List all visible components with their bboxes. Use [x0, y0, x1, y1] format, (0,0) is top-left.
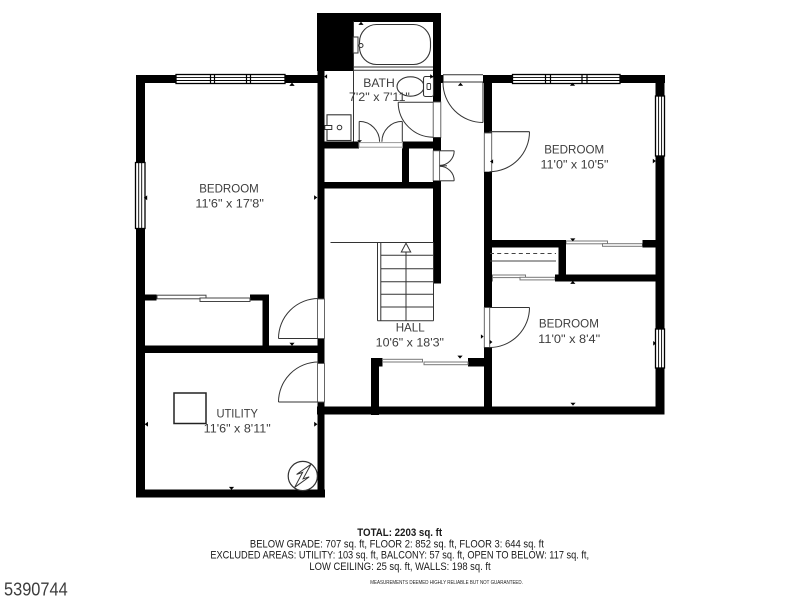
svg-text:BATH: BATH: [363, 76, 395, 90]
svg-text:10'6" x 18'3": 10'6" x 18'3": [376, 336, 444, 350]
svg-text:BEDROOM: BEDROOM: [539, 317, 599, 331]
svg-text:11'6" x 17'8": 11'6" x 17'8": [195, 197, 264, 211]
svg-text:UTILITY: UTILITY: [216, 407, 258, 421]
svg-text:5390744: 5390744: [4, 580, 68, 600]
svg-text:LOW CEILING: 25 sq. ft, WALLS:: LOW CEILING: 25 sq. ft, WALLS: 198 sq. f…: [309, 561, 490, 573]
svg-text:EXCLUDED AREAS: UTILITY: 103 s: EXCLUDED AREAS: UTILITY: 103 sq. ft, BAL…: [210, 550, 589, 562]
svg-text:11'6" x 8'11": 11'6" x 8'11": [204, 422, 271, 436]
svg-text:HALL: HALL: [396, 321, 425, 335]
svg-text:11'0" x 8'4": 11'0" x 8'4": [538, 332, 600, 346]
svg-text:MEASUREMENTS DEEMED HIGHLY REL: MEASUREMENTS DEEMED HIGHLY RELIABLE BUT …: [370, 580, 523, 586]
svg-text:7'2" x 7'11": 7'2" x 7'11": [349, 90, 410, 104]
svg-text:BEDROOM: BEDROOM: [199, 181, 259, 195]
svg-text:BEDROOM: BEDROOM: [544, 142, 604, 156]
svg-text:11'0" x 10'5": 11'0" x 10'5": [541, 157, 609, 171]
svg-text:TOTAL: 2203 sq. ft: TOTAL: 2203 sq. ft: [357, 527, 442, 539]
